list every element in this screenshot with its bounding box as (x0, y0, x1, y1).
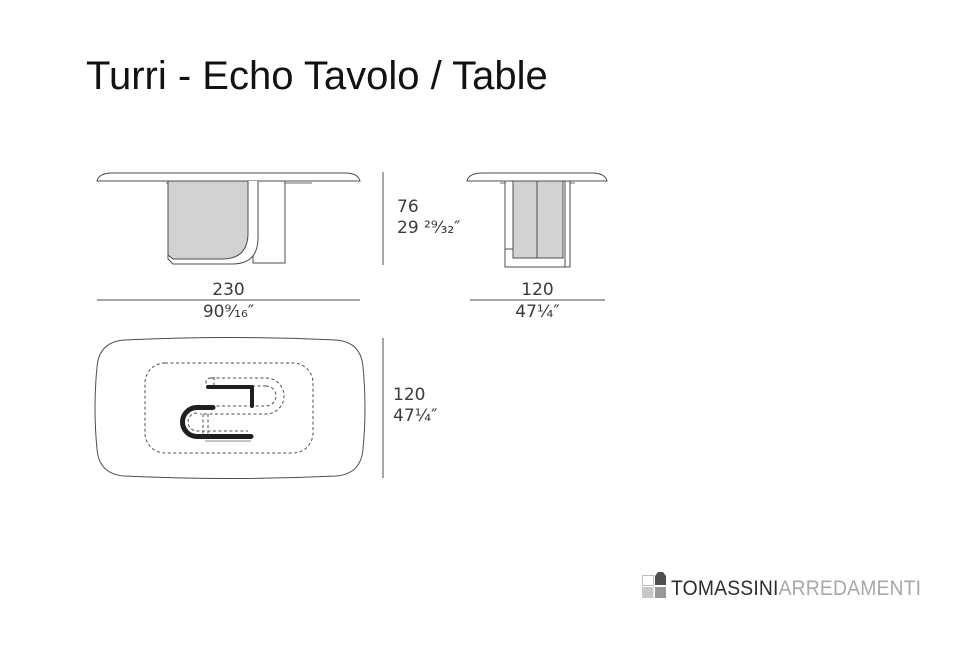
brand-name: TOMASSINI (671, 577, 779, 600)
spec-sheet-page: Turri - Echo Tavolo / Table (0, 0, 972, 648)
front-width-in: 90⁹⁄₁₆″ (97, 303, 360, 322)
plan-depth-cm: 120 (393, 386, 425, 405)
side-pedestal-panel (513, 181, 563, 258)
side-width-in: 47¼″ (470, 303, 605, 322)
brand-logo-text: TOMASSINIARREDAMENTI (671, 578, 921, 600)
front-base-panel (168, 181, 248, 259)
front-height-in: 29 ²⁹⁄₃₂″ (397, 219, 460, 238)
front-tabletop (97, 173, 360, 181)
side-elevation-view (467, 173, 607, 267)
front-width-cm: 230 (97, 281, 360, 300)
brand-suffix: ARREDAMENTI (779, 577, 922, 600)
side-width-cm: 120 (470, 281, 605, 300)
plan-view (95, 338, 365, 479)
plan-depth-in: 47¼″ (393, 407, 437, 426)
front-elevation-view (97, 173, 360, 264)
plan-tabletop-outline (95, 338, 365, 479)
brand-logo-icon (642, 571, 668, 601)
brand-logo: TOMASSINIARREDAMENTI (642, 571, 952, 603)
technical-drawing (0, 0, 972, 648)
side-tabletop (467, 173, 607, 181)
front-height-cm: 76 (397, 198, 419, 217)
